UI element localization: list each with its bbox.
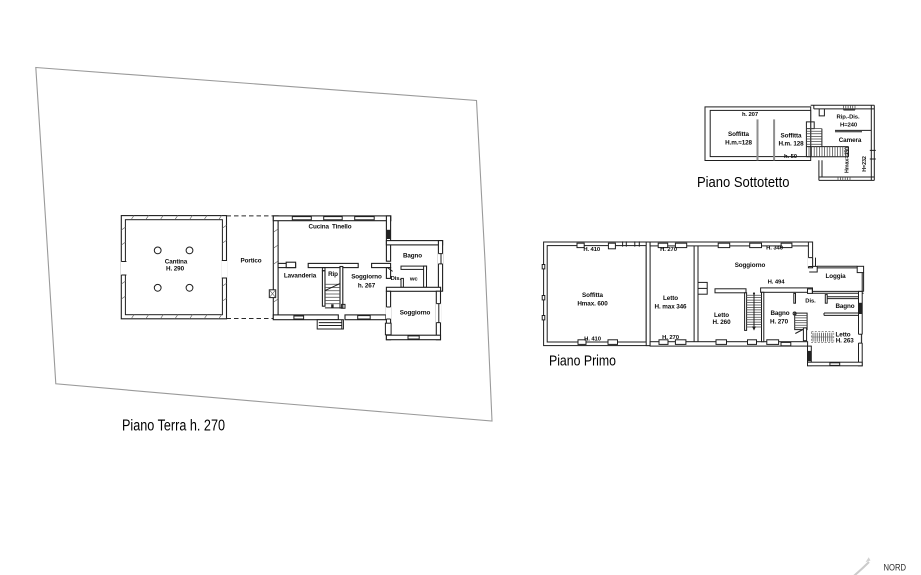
- svg-text:Portico: Portico: [241, 257, 262, 264]
- svg-text:H. 410: H. 410: [584, 336, 602, 342]
- svg-text:H. 260: H. 260: [713, 319, 732, 326]
- svg-text:H. 263: H. 263: [836, 338, 855, 345]
- svg-text:H=240: H=240: [840, 122, 858, 128]
- svg-text:h. 50: h. 50: [784, 154, 798, 160]
- svg-text:Cucina Tinello: Cucina Tinello: [309, 223, 352, 230]
- svg-text:H.m.≈128: H.m.≈128: [725, 139, 752, 146]
- svg-text:NORD: NORD: [884, 563, 907, 573]
- svg-text:Rip.-Dis.: Rip.-Dis.: [837, 115, 860, 121]
- svg-text:Piano Primo: Piano Primo: [549, 353, 616, 369]
- svg-text:H=232: H=232: [862, 156, 868, 172]
- svg-text:H. 270: H. 270: [770, 318, 789, 325]
- svg-text:Soggiorno: Soggiorno: [735, 262, 766, 269]
- svg-text:Loggia: Loggia: [825, 273, 846, 280]
- svg-text:Cantina: Cantina: [165, 259, 188, 266]
- svg-text:H. 340: H. 340: [766, 246, 784, 252]
- svg-text:Bagno: Bagno: [835, 303, 854, 310]
- svg-text:Soffitta: Soffitta: [781, 132, 802, 139]
- svg-text:Hmax. 600: Hmax. 600: [577, 301, 608, 308]
- svg-text:Letto: Letto: [663, 295, 678, 302]
- svg-text:Bagno: Bagno: [770, 310, 789, 317]
- svg-text:Soggiorno: Soggiorno: [351, 273, 382, 280]
- svg-text:H. 270: H. 270: [660, 247, 678, 253]
- svg-text:Soffitta: Soffitta: [728, 131, 749, 138]
- svg-text:H. 270: H. 270: [662, 335, 680, 341]
- svg-text:Soffitta: Soffitta: [582, 292, 603, 299]
- svg-text:Piano Sottotetto: Piano Sottotetto: [697, 174, 790, 191]
- svg-text:h. 207: h. 207: [742, 112, 759, 118]
- svg-text:Lavanderia: Lavanderia: [284, 273, 317, 280]
- svg-text:H. 410: H. 410: [583, 247, 601, 253]
- svg-text:Piano Terra h. 270: Piano Terra h. 270: [122, 418, 225, 435]
- svg-text:h. 267: h. 267: [358, 282, 376, 289]
- svg-text:Bagno: Bagno: [403, 252, 422, 259]
- svg-text:Dis.: Dis.: [391, 276, 402, 282]
- svg-text:Letto: Letto: [714, 312, 729, 319]
- svg-text:H.m. 128: H.m. 128: [778, 141, 804, 148]
- svg-text:Rip: Rip: [328, 271, 338, 278]
- svg-text:H. 290: H. 290: [166, 266, 185, 273]
- svg-text:Camera: Camera: [839, 137, 862, 144]
- svg-text:H. max 346: H. max 346: [655, 303, 688, 310]
- svg-text:Dis.: Dis.: [805, 299, 816, 305]
- svg-text:H. 494: H. 494: [768, 280, 786, 286]
- svg-text:Soggiorno: Soggiorno: [400, 309, 431, 316]
- svg-text:wc: wc: [409, 276, 418, 282]
